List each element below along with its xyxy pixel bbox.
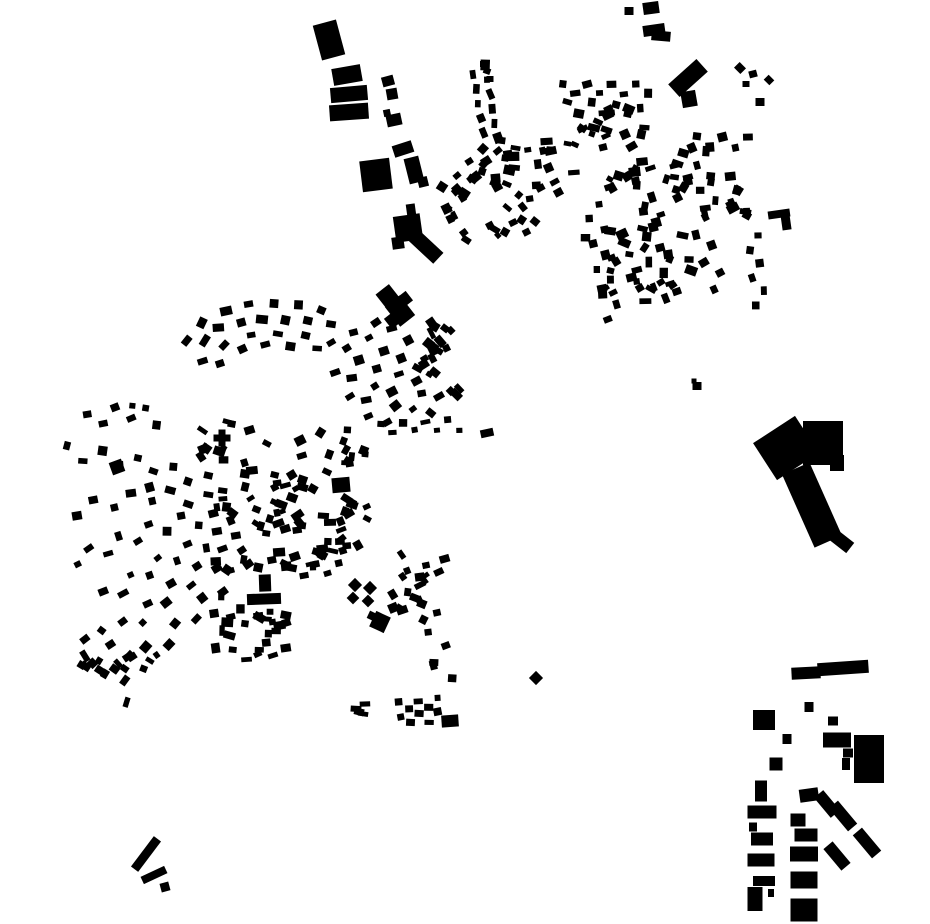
building (114, 531, 123, 541)
building (480, 59, 490, 70)
building (387, 589, 398, 601)
building (636, 157, 648, 166)
building (753, 710, 775, 730)
building (339, 436, 348, 446)
building (414, 710, 424, 717)
building (153, 554, 162, 563)
building (677, 148, 689, 159)
building (755, 259, 764, 268)
building (491, 119, 497, 128)
building (381, 75, 395, 88)
building (182, 540, 192, 549)
building (625, 251, 634, 258)
building (410, 375, 422, 386)
building (524, 147, 532, 153)
building (191, 613, 202, 624)
building (651, 30, 671, 42)
building (348, 328, 358, 337)
building (731, 143, 739, 152)
building (129, 403, 136, 409)
building (417, 389, 427, 397)
building (176, 511, 185, 520)
building (441, 641, 451, 650)
building (289, 551, 301, 562)
building (341, 343, 352, 353)
building (433, 391, 445, 402)
building (173, 556, 181, 565)
building (604, 226, 616, 235)
building (498, 137, 506, 145)
building (526, 195, 534, 202)
building (502, 180, 512, 188)
building (347, 592, 360, 605)
building (405, 705, 413, 712)
building (434, 695, 440, 701)
building (696, 187, 704, 194)
building (324, 538, 332, 545)
building (606, 81, 616, 88)
building (83, 543, 94, 553)
building (199, 334, 211, 348)
building (823, 733, 851, 748)
building (169, 617, 181, 629)
building (296, 482, 309, 492)
building (144, 482, 155, 493)
building (485, 88, 495, 100)
building (606, 267, 614, 275)
building (544, 146, 557, 156)
building (286, 492, 299, 504)
building (608, 288, 618, 297)
building (144, 520, 154, 529)
building (684, 256, 693, 263)
building (273, 330, 284, 337)
building (148, 497, 156, 506)
building (318, 512, 330, 519)
building (346, 374, 357, 382)
building (510, 145, 520, 151)
building (63, 441, 71, 451)
building (399, 419, 407, 427)
building (669, 162, 679, 169)
building (395, 352, 407, 364)
building (186, 580, 197, 590)
building (236, 317, 247, 327)
building (676, 231, 689, 240)
building (326, 320, 337, 328)
building (97, 626, 107, 636)
building (783, 734, 792, 744)
building (529, 216, 540, 227)
building (273, 548, 286, 557)
building (805, 702, 814, 712)
building (748, 273, 757, 283)
building (502, 203, 512, 212)
building (218, 496, 227, 502)
building (253, 562, 264, 572)
building (363, 412, 373, 421)
building (484, 76, 490, 82)
building (139, 640, 153, 654)
building (641, 201, 649, 211)
building (350, 705, 361, 712)
building (383, 109, 391, 117)
building (98, 420, 108, 428)
building (324, 449, 334, 460)
building (196, 592, 209, 605)
building (218, 339, 230, 351)
building (240, 469, 251, 479)
building (828, 717, 838, 726)
building (553, 187, 564, 198)
building (219, 430, 226, 447)
building (259, 574, 272, 591)
building (359, 158, 393, 192)
building (672, 192, 683, 203)
building (700, 204, 711, 211)
building (755, 781, 767, 802)
building (246, 494, 255, 502)
building (748, 70, 758, 79)
building (169, 462, 177, 471)
building (237, 344, 248, 355)
building (842, 758, 850, 770)
building (743, 208, 750, 214)
building (413, 698, 422, 704)
building (331, 64, 363, 86)
building (164, 485, 176, 495)
building (377, 421, 384, 428)
building (707, 178, 715, 187)
building (191, 561, 202, 572)
building (581, 234, 591, 242)
building (692, 379, 697, 384)
north-block-chain (313, 20, 444, 264)
building (791, 899, 818, 922)
building (202, 543, 210, 553)
building (228, 646, 236, 653)
building (562, 98, 572, 106)
building (324, 519, 336, 526)
building (312, 345, 322, 351)
building (286, 563, 297, 572)
building (517, 202, 527, 213)
building (329, 368, 341, 377)
building (698, 257, 710, 269)
building (420, 419, 431, 426)
building (625, 7, 634, 15)
building (606, 175, 614, 183)
building (262, 638, 271, 647)
building (516, 214, 527, 225)
building (138, 618, 147, 627)
building (392, 140, 415, 158)
building (240, 482, 249, 492)
building (434, 427, 441, 433)
building (534, 159, 542, 169)
building (607, 276, 614, 284)
building (644, 89, 652, 98)
building (240, 458, 249, 467)
building (310, 562, 316, 571)
building (210, 557, 221, 565)
building (218, 487, 228, 494)
building (353, 354, 365, 366)
building (262, 530, 271, 537)
building (603, 315, 613, 324)
building (549, 177, 560, 186)
building (322, 467, 333, 476)
building (660, 268, 668, 278)
building (182, 499, 194, 509)
building (221, 617, 233, 627)
building (761, 286, 767, 295)
building (260, 340, 271, 348)
building (316, 305, 327, 315)
building (218, 592, 224, 601)
building (329, 103, 369, 122)
building (573, 108, 585, 119)
building (402, 334, 414, 346)
building (262, 439, 272, 448)
building (661, 293, 671, 305)
building (680, 90, 698, 108)
building (370, 317, 382, 328)
building (211, 527, 222, 536)
building (125, 489, 136, 498)
building (507, 152, 519, 161)
building (433, 567, 444, 577)
building (267, 609, 274, 615)
building (148, 467, 159, 476)
building (331, 477, 350, 494)
building (197, 425, 208, 435)
factory-complex (753, 416, 854, 553)
building (195, 521, 203, 529)
building (388, 430, 397, 435)
building (141, 866, 168, 884)
building (364, 333, 373, 342)
building (433, 609, 442, 617)
building (300, 331, 310, 340)
building (408, 405, 417, 414)
building (642, 232, 652, 242)
building (612, 299, 621, 309)
building (791, 814, 806, 827)
building (493, 146, 503, 156)
building (327, 547, 338, 554)
building (160, 596, 173, 609)
building (452, 171, 461, 180)
building (297, 522, 306, 530)
building (843, 749, 853, 758)
building (330, 85, 368, 103)
building (477, 143, 489, 155)
building (734, 62, 746, 74)
building (469, 70, 476, 80)
building (397, 549, 407, 560)
building (344, 426, 352, 433)
building (425, 407, 437, 418)
building (422, 561, 430, 569)
building (540, 137, 553, 145)
building (131, 836, 161, 872)
building (829, 801, 857, 832)
building (345, 459, 354, 467)
building (241, 657, 252, 662)
building (501, 154, 509, 162)
building (746, 246, 754, 255)
building (448, 674, 457, 682)
building (795, 829, 818, 842)
building (378, 345, 390, 356)
building (752, 301, 760, 309)
building (693, 161, 701, 170)
building (162, 638, 175, 651)
building (336, 516, 346, 527)
west-village (63, 284, 465, 727)
building (424, 720, 433, 725)
building (596, 90, 603, 96)
building (585, 215, 593, 223)
building (215, 359, 225, 368)
building (717, 132, 728, 143)
building (645, 164, 656, 172)
building (480, 428, 494, 439)
building (418, 614, 429, 625)
building (326, 338, 336, 347)
building (163, 527, 172, 536)
map-canvas (0, 0, 930, 924)
building (134, 454, 143, 462)
building (142, 404, 150, 411)
building (211, 643, 221, 654)
building (244, 300, 254, 308)
building (145, 656, 155, 664)
building (692, 132, 701, 140)
building (209, 609, 219, 619)
building (360, 396, 372, 404)
building (280, 315, 291, 326)
building (323, 570, 332, 578)
building (456, 428, 462, 433)
building (790, 847, 818, 862)
building (127, 571, 135, 579)
building (145, 571, 154, 580)
building (88, 495, 99, 504)
building (203, 491, 214, 498)
building (213, 503, 220, 512)
building (854, 735, 884, 783)
building (424, 629, 432, 636)
building (588, 98, 596, 107)
building (280, 610, 292, 620)
building (267, 556, 277, 565)
building (345, 392, 356, 402)
building (613, 170, 625, 182)
building (570, 141, 579, 149)
building (406, 203, 417, 216)
building (636, 129, 646, 140)
building (119, 674, 130, 686)
building (165, 578, 177, 589)
building (152, 420, 161, 430)
building (639, 298, 651, 304)
building (385, 385, 398, 398)
southeast-village (748, 660, 885, 922)
building (394, 370, 405, 378)
building (371, 364, 382, 374)
building (768, 889, 774, 897)
building (159, 881, 170, 892)
building (476, 113, 486, 124)
building (290, 509, 304, 522)
building (363, 581, 377, 595)
building (123, 697, 131, 708)
building (243, 425, 255, 436)
building (642, 1, 660, 15)
building (79, 634, 90, 645)
building (715, 268, 726, 278)
building (110, 402, 121, 412)
building (299, 572, 309, 580)
building (294, 300, 303, 310)
building (619, 91, 628, 98)
building (529, 671, 543, 685)
building (336, 526, 347, 534)
building (133, 536, 143, 546)
building (748, 887, 763, 911)
building (570, 90, 581, 97)
building (743, 134, 753, 141)
building (475, 100, 481, 107)
building (231, 531, 242, 540)
building (296, 451, 307, 460)
building (791, 666, 821, 680)
building (181, 335, 193, 347)
building (97, 445, 108, 456)
building (670, 174, 679, 181)
building (508, 218, 518, 227)
building (514, 190, 523, 199)
building (307, 483, 319, 494)
building (362, 595, 375, 608)
building (203, 471, 213, 480)
building (316, 544, 328, 553)
north-village (436, 59, 792, 685)
building (725, 171, 737, 181)
building (237, 545, 248, 555)
building (406, 719, 415, 726)
building (702, 146, 710, 157)
building (256, 314, 269, 324)
building (424, 704, 433, 711)
building (223, 630, 236, 640)
building (754, 232, 761, 238)
building (522, 228, 532, 237)
building (348, 578, 362, 592)
building (764, 75, 775, 86)
building (103, 550, 114, 558)
building (830, 455, 844, 471)
building (404, 588, 412, 597)
building (386, 324, 398, 332)
building (105, 639, 117, 650)
building (71, 511, 82, 521)
building (83, 410, 92, 418)
building (386, 88, 399, 101)
building (709, 284, 718, 294)
